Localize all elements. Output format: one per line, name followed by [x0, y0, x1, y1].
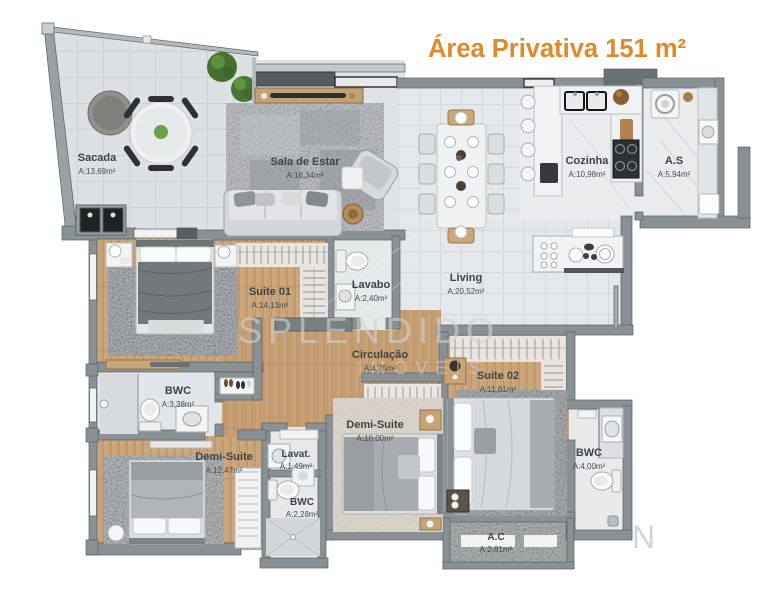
svg-text:Sacada: Sacada — [78, 152, 117, 164]
svg-text:A:11,61m²: A:11,61m² — [480, 385, 517, 394]
svg-text:A:20,52m²: A:20,52m² — [448, 287, 485, 296]
svg-text:N: N — [632, 519, 655, 555]
svg-text:BWC: BWC — [576, 447, 602, 459]
svg-text:A:2,40m²: A:2,40m² — [355, 294, 388, 303]
svg-text:A:4,00m²: A:4,00m² — [573, 462, 606, 471]
svg-text:A:5,94m²: A:5,94m² — [658, 170, 691, 179]
svg-text:A.C: A.C — [487, 532, 504, 543]
svg-text:Circulação: Circulação — [352, 349, 409, 361]
svg-text:A:3,38m²: A:3,38m² — [162, 400, 195, 409]
svg-text:Demi-Suite: Demi-Suite — [195, 451, 252, 463]
svg-text:Demi-Suite: Demi-Suite — [346, 419, 403, 431]
svg-text:A:1,49m²: A:1,49m² — [280, 462, 313, 471]
svg-text:A:14,13m²: A:14,13m² — [252, 301, 289, 310]
svg-text:Suite 01: Suite 01 — [249, 286, 291, 298]
svg-text:A:12,47m²: A:12,47m² — [206, 466, 243, 475]
svg-text:A:16,34m²: A:16,34m² — [287, 171, 324, 180]
svg-text:Living: Living — [450, 272, 482, 284]
svg-text:A:2,28m²: A:2,28m² — [286, 510, 319, 519]
svg-text:A:2,81m²: A:2,81m² — [480, 545, 513, 554]
svg-text:Lavat.: Lavat. — [282, 449, 311, 460]
svg-text:SPLENDIDO: SPLENDIDO — [238, 310, 500, 351]
svg-text:A.S: A.S — [665, 155, 683, 167]
svg-text:Sala de Estar: Sala de Estar — [270, 156, 340, 168]
svg-text:Cozinha: Cozinha — [566, 155, 610, 167]
svg-text:A:13,69m²: A:13,69m² — [79, 167, 116, 176]
svg-text:BWC: BWC — [290, 497, 314, 508]
svg-text:A:10,00m²: A:10,00m² — [357, 434, 394, 443]
svg-text:A:4,75m²: A:4,75m² — [364, 364, 397, 373]
svg-text:Suite 02: Suite 02 — [477, 370, 519, 382]
svg-text:Área Privativa 151 m²: Área Privativa 151 m² — [428, 34, 686, 63]
svg-text:A:10,98m²: A:10,98m² — [569, 170, 606, 179]
svg-text:BWC: BWC — [165, 385, 191, 397]
svg-text:Lavabo: Lavabo — [352, 279, 391, 291]
